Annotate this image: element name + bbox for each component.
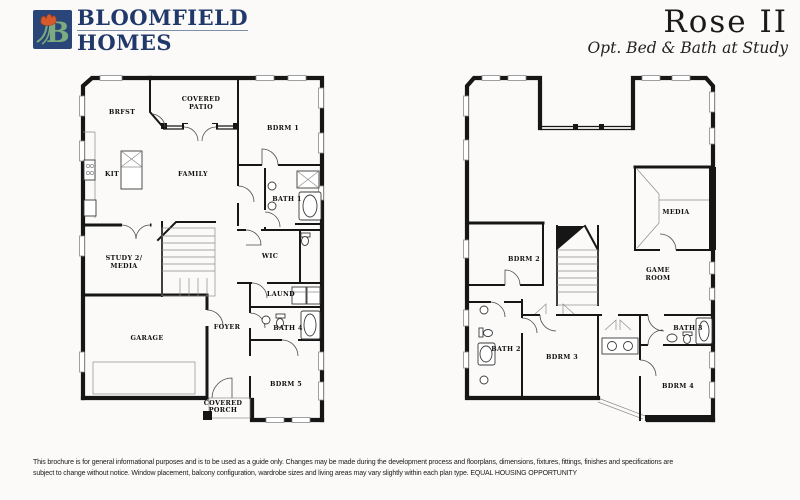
brand-name: BLOOMFIELD HOMES [77, 7, 248, 53]
room-label-bath2: BATH 2 [491, 345, 521, 353]
disclaimer-line1: This brochure is for general information… [33, 457, 795, 468]
room-label-bath3: BATH 3 [673, 324, 703, 332]
plan-title-block: Rose II Opt. Bed & Bath at Study [587, 6, 788, 57]
brand-line2: HOMES [77, 31, 248, 53]
brochure-page: { "header": { "logo_letter": "B", "brand… [0, 0, 800, 500]
bloomfield-logo: B [33, 10, 72, 49]
room-label-bdrm5: BDRM 5 [270, 380, 302, 388]
room-label-bdrm2: BDRM 2 [508, 255, 540, 263]
room-label-bath1: BATH 1 [272, 195, 302, 203]
room-label-study-2: MEDIA [110, 262, 138, 270]
room-label-kit: KIT [105, 170, 119, 178]
disclaimer-line2: subject to change without notice. Window… [33, 468, 795, 479]
room-label-foyer: FOYER [214, 323, 241, 331]
room-label-laund: LAUND [267, 290, 295, 298]
f2-stairs [557, 226, 598, 305]
room-label-game-1: GAME [646, 266, 670, 274]
first-floor-plan: BRFST COVERED PATIO BDRM 1 KIT FAMILY BA… [80, 76, 324, 423]
f1-labels: BRFST COVERED PATIO BDRM 1 KIT FAMILY BA… [105, 95, 303, 414]
room-label-wic: WIC [261, 252, 278, 260]
f1-stairs [162, 228, 215, 296]
second-floor-plan: MEDIA BDRM 2 GAME ROOM BATH 2 BDRM 3 BAT… [464, 76, 717, 422]
room-label-study-1: STUDY 2/ [106, 254, 143, 262]
room-label-patio-1: COVERED [182, 95, 221, 103]
room-label-family: FAMILY [178, 170, 208, 178]
room-label-garage: GARAGE [130, 334, 163, 342]
plan-subtitle: Opt. Bed & Bath at Study [587, 39, 788, 57]
plan-title: Rose II [587, 6, 788, 39]
room-label-porch-2: PORCH [209, 406, 238, 414]
f2-inner-walls [467, 124, 713, 420]
room-label-brfst: BRFST [109, 108, 135, 116]
room-label-patio-2: PATIO [189, 103, 213, 111]
logo-tulip-icon: B [33, 10, 72, 49]
room-label-bath4: BATH 4 [273, 324, 303, 332]
room-label-game-2: ROOM [646, 274, 671, 282]
room-label-bdrm3: BDRM 3 [546, 353, 578, 361]
floorplans-canvas: BRFST COVERED PATIO BDRM 1 KIT FAMILY BA… [0, 0, 800, 455]
disclaimer: This brochure is for general information… [33, 457, 795, 479]
room-label-bdrm4: BDRM 4 [662, 382, 694, 390]
room-label-bdrm1: BDRM 1 [267, 124, 299, 132]
brand-line1: BLOOMFIELD [77, 7, 248, 31]
room-label-media: MEDIA [662, 208, 690, 216]
